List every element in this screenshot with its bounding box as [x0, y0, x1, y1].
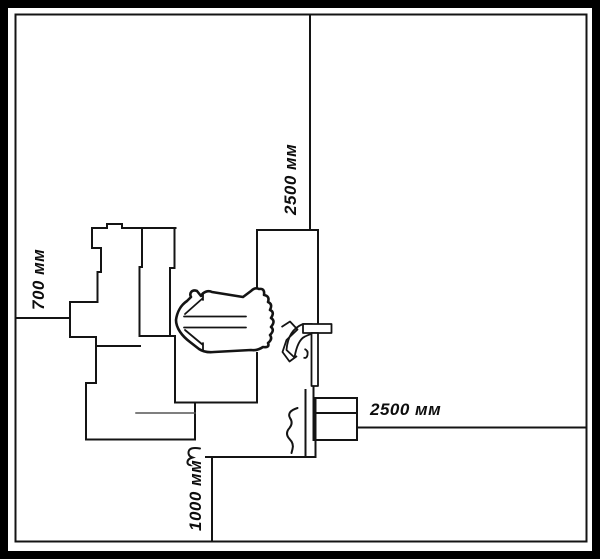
dimension-label-bottom: 1000 мм	[186, 460, 205, 531]
door-lintel-bar	[303, 324, 332, 333]
toilet-top-view-icon	[176, 288, 274, 352]
door-hinge-mark	[304, 349, 308, 358]
shaft-right-edge	[170, 228, 175, 335]
shaft-left-edge	[140, 228, 143, 336]
floor-plan-diagram: 2500 мм 700 мм 2500 мм 1000 мм	[0, 0, 600, 559]
wall-section-block	[316, 398, 358, 440]
door-swing-icon	[282, 322, 332, 387]
dimension-label-top: 2500 мм	[281, 144, 300, 216]
break-mark-door	[287, 408, 298, 453]
wall-left-staircase	[70, 228, 195, 440]
drawing-frame	[16, 15, 587, 542]
dimension-label-left: 700 мм	[29, 249, 48, 310]
door-leaf	[312, 333, 319, 386]
wall-top-left-edge	[92, 224, 176, 228]
room-walls	[70, 16, 357, 542]
toilet-outline	[176, 288, 274, 352]
plan-drawing: 2500 мм 700 мм 2500 мм 1000 мм	[0, 0, 600, 559]
dimension-label-right: 2500 мм	[369, 400, 441, 419]
